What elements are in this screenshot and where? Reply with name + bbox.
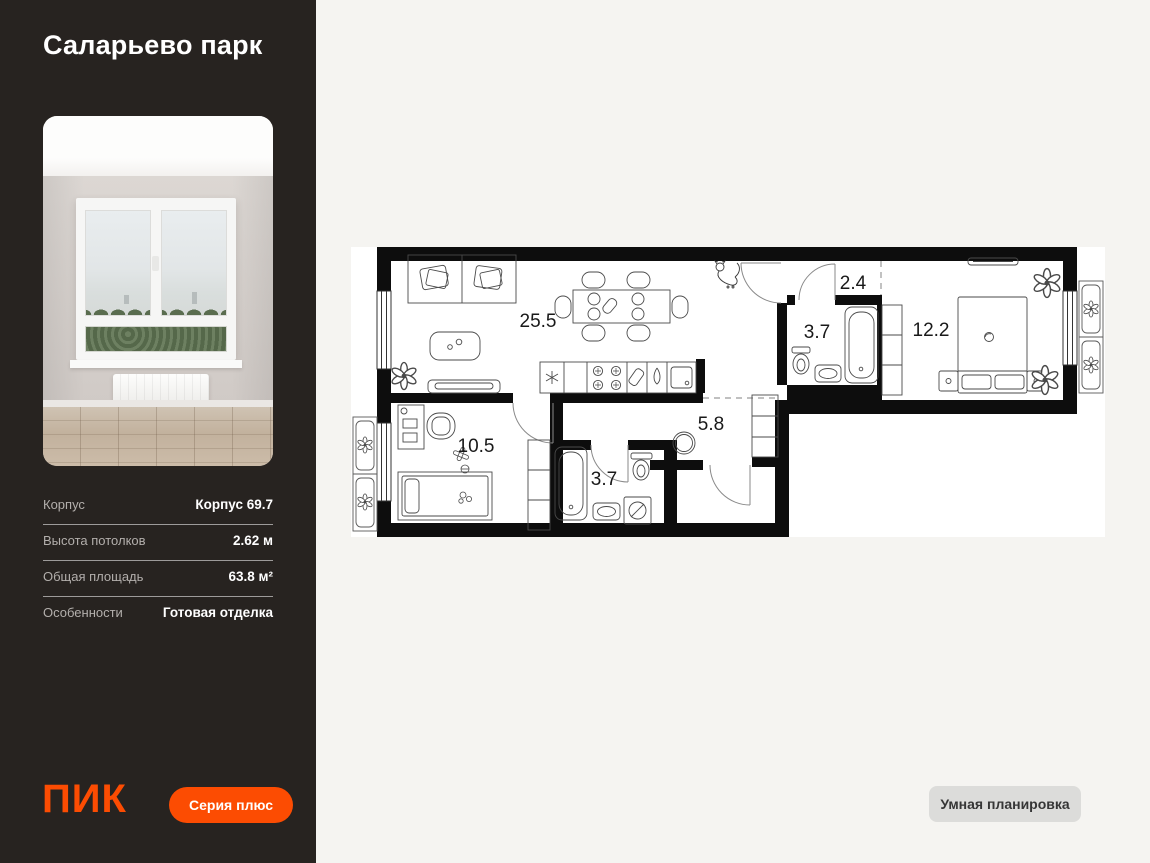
- room-area-hall: 5.8: [698, 414, 724, 435]
- room-area-bath-bottom: 3.7: [591, 469, 617, 490]
- spec-value: 2.62 м: [233, 533, 273, 548]
- window-handle: [152, 256, 159, 271]
- room-area-bath-top: 3.7: [804, 322, 830, 343]
- treeline: [162, 302, 226, 315]
- room-area-bedroom: 12.2: [913, 320, 950, 341]
- floor-plan: 25.5 2.4 3.7 12.2 10.5 5.8 3.7: [351, 247, 1105, 537]
- spec-row-total-area: Общая площадь 63.8 м²: [43, 561, 273, 597]
- window-sill: [70, 360, 242, 368]
- room-area-kids: 10.5: [458, 436, 495, 457]
- treeline: [86, 302, 150, 315]
- spec-value: Корпус 69.7: [195, 497, 273, 512]
- spec-row-korpus: Корпус Корпус 69.7: [43, 489, 273, 525]
- window-pane-right: [161, 210, 227, 316]
- spec-label: Особенности: [43, 605, 123, 620]
- wood-floor: [43, 407, 273, 466]
- spec-list: Корпус Корпус 69.7 Высота потолков 2.62 …: [43, 489, 273, 632]
- spec-label: Общая площадь: [43, 569, 143, 584]
- photo-ceiling: [43, 116, 273, 176]
- page: Саларьево парк: [0, 0, 1150, 863]
- plan-background: [351, 247, 1105, 537]
- spec-row-ceiling-height: Высота потолков 2.62 м: [43, 525, 273, 561]
- room-area-living: 25.5: [520, 311, 557, 332]
- spec-value: 63.8 м²: [228, 569, 273, 584]
- window-pane-left: [85, 210, 151, 316]
- apartment-interior-photo: [43, 116, 273, 466]
- sidebar: Саларьево парк: [0, 0, 316, 863]
- window-transom-trees: [85, 326, 227, 352]
- pik-logo[interactable]: ПИК: [42, 776, 127, 822]
- spec-label: Корпус: [43, 497, 85, 512]
- photo-window-frame: [76, 198, 236, 360]
- series-plus-button[interactable]: Серия плюс: [169, 787, 293, 823]
- project-title: Саларьево парк: [43, 30, 263, 61]
- baseboard: [43, 400, 273, 407]
- spec-row-features: Особенности Готовая отделка: [43, 597, 273, 632]
- spec-value: Готовая отделка: [163, 605, 273, 620]
- smart-layout-button[interactable]: Умная планировка: [929, 786, 1081, 822]
- room-area-corridor: 2.4: [840, 273, 867, 294]
- spec-label: Высота потолков: [43, 533, 146, 548]
